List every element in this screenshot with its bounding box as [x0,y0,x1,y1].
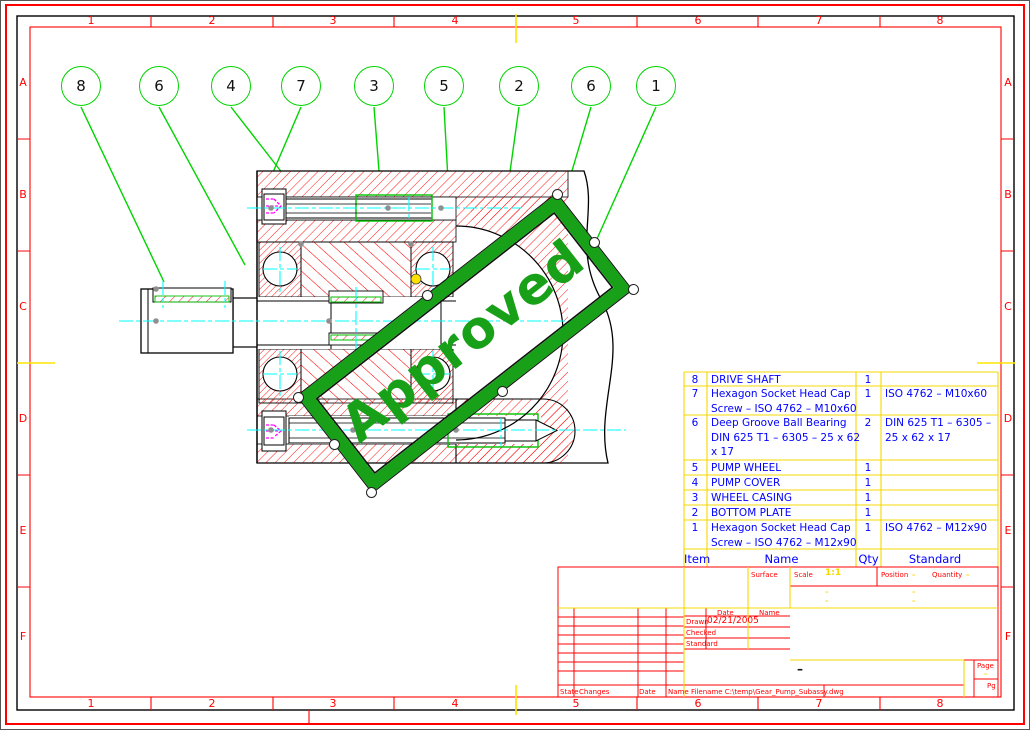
grid-col-label: 5 [568,15,584,27]
grid-row-label: A [1000,77,1016,89]
selection-grip[interactable] [628,284,639,295]
parts-name: BOTTOM PLATE [711,506,921,521]
balloon-callout[interactable]: 5 [424,66,464,106]
cad-drawing-sheet: 1 2 3 4 5 6 7 8 1 2 3 4 5 6 7 8 A B C D … [0,0,1030,730]
pages-label: Pg [987,682,996,690]
balloon-callout[interactable]: 6 [571,66,611,106]
selection-grip[interactable] [552,189,563,200]
grid-row-label: B [15,189,31,201]
parts-qty: 1 [854,476,882,491]
page-label: Page [977,662,994,670]
grid-col-label: 6 [690,698,706,710]
balloon-callout[interactable]: 7 [281,66,321,106]
selection-grip[interactable] [589,237,600,248]
grid-col-label: 7 [811,15,827,27]
balloon-callout[interactable]: 6 [139,66,179,106]
balloon-callout[interactable]: 3 [354,66,394,106]
quantity-value: – [966,571,970,579]
parts-header-name: Name [707,552,856,566]
parts-item: 4 [687,476,703,491]
grid-row-label: C [1000,301,1016,313]
grid-col-label: 5 [568,698,584,710]
grid-row-label: C [15,301,31,313]
position-label: Position [881,571,908,579]
revision-date-label: Date [639,688,656,696]
filename-label: Filename C:\temp\Gear_Pump_Subassy.dwg [691,688,844,696]
parts-item: 3 [687,491,703,506]
title-sub-value: – [825,597,829,605]
grid-row-label: F [1000,631,1016,643]
parts-name: WHEEL CASING [711,491,921,506]
parts-name: DRIVE SHAFT [711,373,921,388]
balloon-callout[interactable]: 2 [499,66,539,106]
parts-qty: 2 [854,416,882,431]
title-block-grid [558,567,998,697]
grid-col-label: 2 [204,698,220,710]
parts-standard: ISO 4762 – M10x60 [885,387,1025,402]
drawn-label: Drawn [686,618,709,626]
grid-row-label: E [15,525,31,537]
balloon-number: 5 [439,77,449,95]
parts-qty: 1 [854,373,882,388]
balloon-number: 2 [514,77,524,95]
parts-qty: 1 [854,506,882,521]
scale-value: 1:1 [825,569,841,577]
grid-col-label: 6 [690,15,706,27]
balloon-number: 8 [76,77,86,95]
grid-col-label: 2 [204,15,220,27]
balloon-number: 7 [296,77,306,95]
parts-item: 5 [687,461,703,476]
grid-col-label: 8 [932,698,948,710]
balloon-callout[interactable]: 4 [211,66,251,106]
scale-label: Scale [794,571,813,579]
parts-name: PUMP WHEEL [711,461,921,476]
drawn-date: 02/21/2005 [707,617,759,625]
parts-item: 6 [687,416,703,431]
parts-name: PUMP COVER [711,476,921,491]
yellow-point-marker[interactable] [411,274,421,284]
quantity-label: Quantity [932,571,962,579]
grid-col-label: 8 [932,15,948,27]
grid-col-label: 4 [447,15,463,27]
grid-row-label: D [15,413,31,425]
parts-qty: 1 [854,387,882,402]
parts-item: 7 [687,387,703,402]
name-header: Name [759,609,780,617]
selection-grip[interactable] [366,487,377,498]
drawing-number-dash: – [797,665,803,673]
state-label: State [560,688,579,696]
changes-label: Changes [579,688,609,696]
parts-standard: DIN 625 T1 – 6305 – 25 x 62 x 17 [885,416,1025,445]
grid-col-label: 3 [325,15,341,27]
parts-item: 8 [687,373,703,388]
balloon-callout[interactable]: 8 [61,66,101,106]
balloon-number: 3 [369,77,379,95]
grid-row-label: A [15,77,31,89]
selection-grip[interactable] [497,386,508,397]
selection-grip[interactable] [422,290,433,301]
standard-label: Standard [686,640,718,648]
grid-col-label: 3 [325,698,341,710]
balloon-number: 6 [586,77,596,95]
balloon-number: 6 [154,77,164,95]
grid-col-label: 7 [811,698,827,710]
grid-row-label: F [15,631,31,643]
parts-standard: ISO 4762 – M12x90 [885,521,1025,536]
parts-item: 2 [687,506,703,521]
selection-grip[interactable] [329,439,340,450]
page-value: – [984,670,988,678]
grid-col-label: 4 [447,698,463,710]
grid-col-label: 1 [83,698,99,710]
balloon-number: 1 [651,77,661,95]
grid-row-label: B [1000,189,1016,201]
parts-item: 1 [687,521,703,536]
parts-header-qty: Qty [856,552,881,566]
parts-qty: 1 [854,461,882,476]
position-value: – [912,571,916,579]
title-sub-value: – [825,588,829,596]
parts-header-standard: Standard [885,552,985,566]
title-sub-value: – [912,597,916,605]
parts-qty: 1 [854,491,882,506]
grid-col-label: 1 [83,15,99,27]
parts-qty: 1 [854,521,882,536]
balloon-number: 4 [226,77,236,95]
balloon-callout[interactable]: 1 [636,66,676,106]
parts-header-item: Item [684,552,707,566]
surface-label: Surface [751,571,778,579]
selection-grip[interactable] [293,392,304,403]
checked-label: Checked [686,629,716,637]
revision-name-label: Name [668,688,689,696]
title-sub-value: – [912,588,916,596]
